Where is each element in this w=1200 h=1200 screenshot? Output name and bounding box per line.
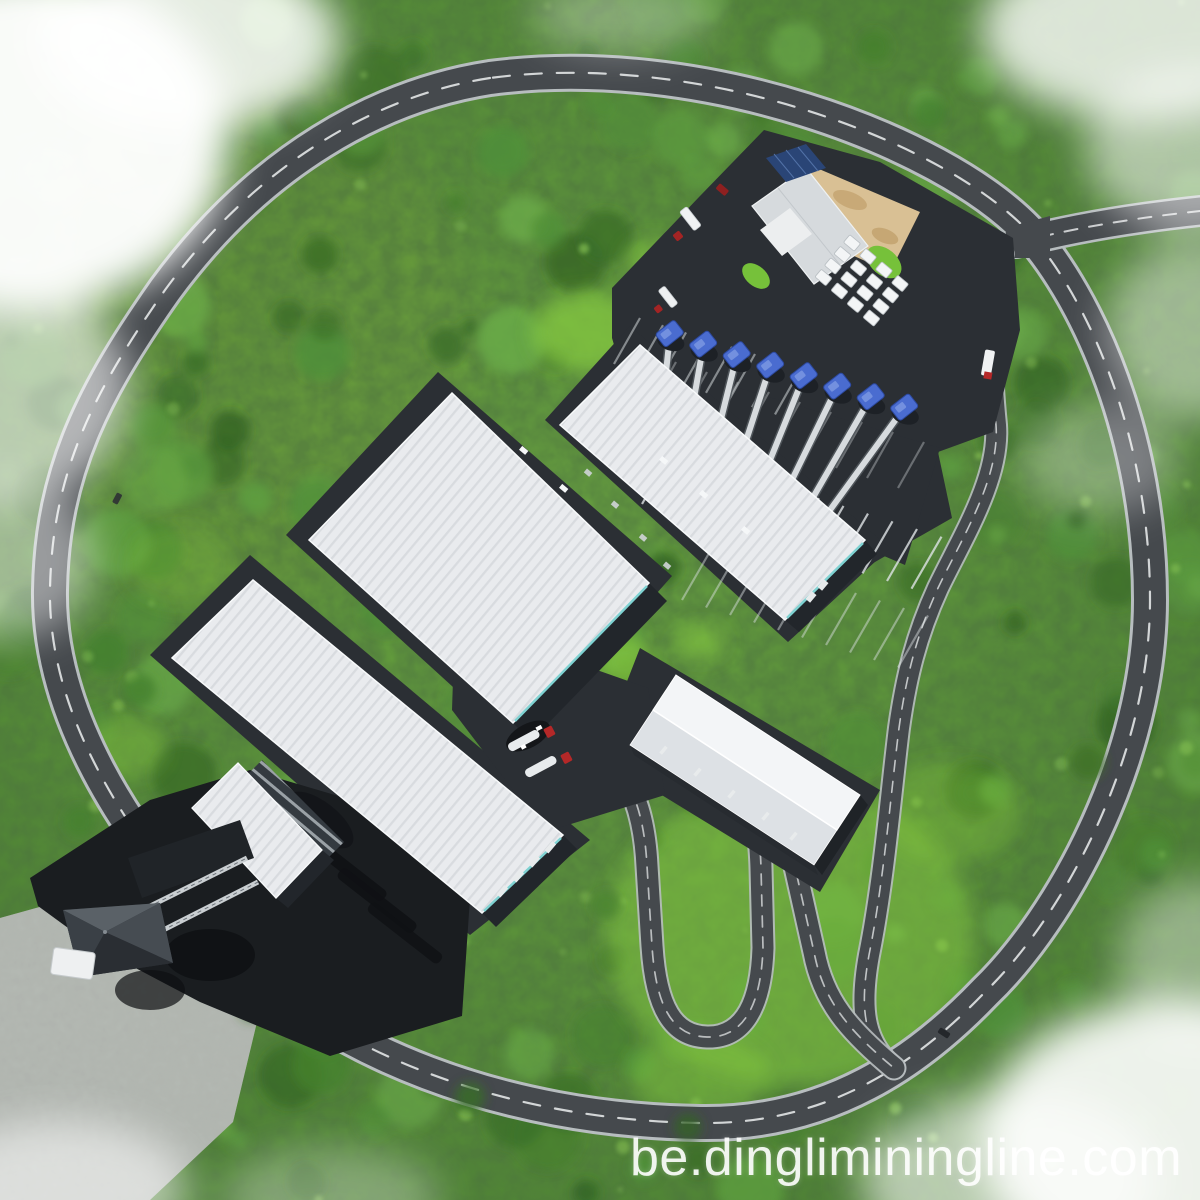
watermark-text: be.dingliminingline.com bbox=[630, 1128, 1200, 1188]
truck-rear bbox=[983, 371, 992, 379]
tent-peak bbox=[103, 930, 107, 934]
box-truck bbox=[50, 947, 95, 980]
scene-canvas bbox=[0, 0, 1200, 1200]
aerial-render: be.dingliminingline.com bbox=[0, 0, 1200, 1200]
